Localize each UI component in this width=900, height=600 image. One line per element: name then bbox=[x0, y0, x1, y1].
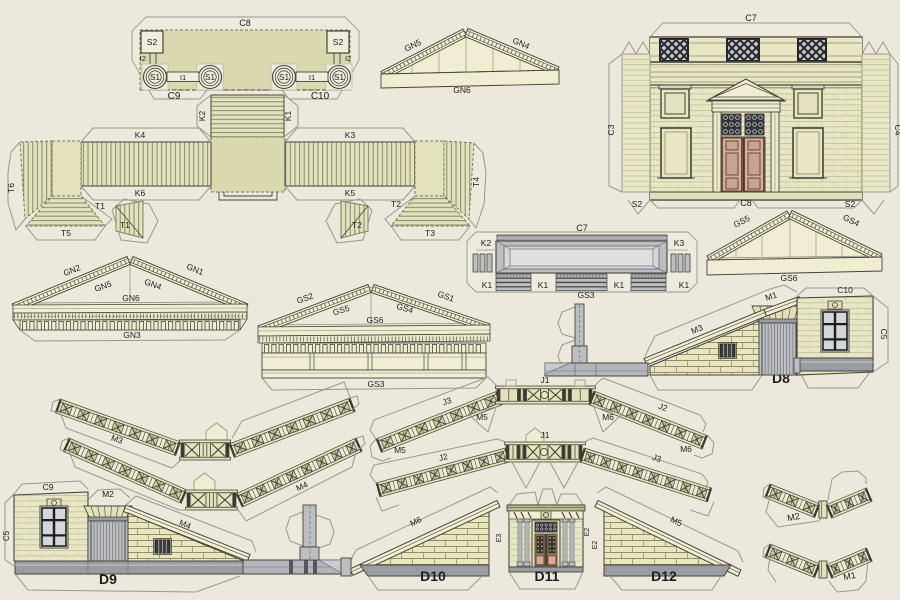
svg-text:M1: M1 bbox=[842, 570, 856, 582]
svg-text:J1: J1 bbox=[541, 430, 550, 440]
svg-text:K3: K3 bbox=[674, 238, 685, 248]
svg-text:S1: S1 bbox=[334, 73, 344, 82]
svg-text:S2: S2 bbox=[632, 199, 643, 209]
svg-text:K6: K6 bbox=[135, 188, 146, 198]
svg-text:S1: S1 bbox=[279, 73, 289, 82]
svg-text:E3: E3 bbox=[496, 534, 503, 543]
svg-text:C7: C7 bbox=[576, 223, 588, 233]
svg-text:K4: K4 bbox=[135, 130, 146, 140]
svg-text:C10: C10 bbox=[837, 285, 853, 295]
svg-text:I1: I1 bbox=[180, 73, 186, 82]
svg-text:C9: C9 bbox=[43, 482, 54, 492]
svg-text:S2: S2 bbox=[147, 37, 158, 47]
svg-text:C9: C9 bbox=[168, 91, 181, 102]
svg-text:K5: K5 bbox=[345, 188, 356, 198]
svg-text:T4: T4 bbox=[471, 177, 481, 187]
svg-text:K3: K3 bbox=[345, 130, 356, 140]
svg-text:K1: K1 bbox=[614, 280, 625, 290]
svg-text:C10: C10 bbox=[311, 91, 330, 102]
svg-text:D10: D10 bbox=[420, 568, 446, 584]
svg-text:C7: C7 bbox=[745, 13, 757, 23]
svg-text:K2: K2 bbox=[197, 111, 207, 122]
svg-text:D11: D11 bbox=[535, 568, 560, 584]
svg-text:I1: I1 bbox=[309, 73, 315, 82]
svg-text:M5: M5 bbox=[476, 412, 488, 422]
svg-text:T2: T2 bbox=[391, 199, 401, 209]
svg-text:C5: C5 bbox=[2, 530, 11, 541]
svg-text:K2: K2 bbox=[481, 238, 492, 248]
svg-text:M6: M6 bbox=[602, 412, 614, 422]
svg-text:GS3: GS3 bbox=[367, 379, 384, 389]
svg-text:M2: M2 bbox=[102, 489, 114, 499]
svg-text:E2: E2 bbox=[584, 528, 591, 537]
svg-text:T6: T6 bbox=[6, 183, 16, 193]
svg-text:C8: C8 bbox=[239, 18, 251, 28]
svg-text:GS6: GS6 bbox=[780, 273, 797, 283]
svg-text:GS6: GS6 bbox=[366, 315, 383, 325]
svg-text:M2: M2 bbox=[786, 511, 800, 523]
svg-text:K1: K1 bbox=[538, 280, 549, 290]
svg-text:S2: S2 bbox=[333, 37, 344, 47]
svg-text:T3: T3 bbox=[425, 228, 435, 238]
svg-text:T2: T2 bbox=[352, 220, 362, 230]
svg-text:C5: C5 bbox=[879, 329, 889, 340]
svg-text:E2: E2 bbox=[592, 541, 599, 550]
svg-text:S1: S1 bbox=[205, 73, 215, 82]
svg-text:I2: I2 bbox=[345, 54, 351, 63]
svg-text:C8: C8 bbox=[740, 198, 752, 208]
svg-text:K1: K1 bbox=[482, 280, 493, 290]
svg-text:D9: D9 bbox=[99, 571, 117, 587]
svg-text:T1: T1 bbox=[120, 220, 130, 230]
svg-text:M6: M6 bbox=[680, 444, 692, 454]
svg-text:GN3: GN3 bbox=[123, 330, 141, 340]
svg-text:GS3: GS3 bbox=[577, 290, 594, 300]
svg-text:T1: T1 bbox=[95, 201, 105, 211]
svg-text:GN6: GN6 bbox=[453, 85, 471, 95]
svg-text:K1: K1 bbox=[679, 280, 690, 290]
svg-text:T5: T5 bbox=[61, 228, 71, 238]
svg-text:S1: S1 bbox=[150, 73, 160, 82]
svg-text:K1: K1 bbox=[283, 111, 293, 122]
svg-text:GN6: GN6 bbox=[122, 293, 140, 303]
svg-text:J1: J1 bbox=[541, 375, 550, 385]
svg-text:D12: D12 bbox=[651, 568, 677, 584]
svg-text:I2: I2 bbox=[140, 54, 146, 63]
svg-text:C3: C3 bbox=[606, 124, 616, 135]
svg-text:C4: C4 bbox=[893, 125, 900, 136]
svg-text:M5: M5 bbox=[394, 445, 406, 455]
